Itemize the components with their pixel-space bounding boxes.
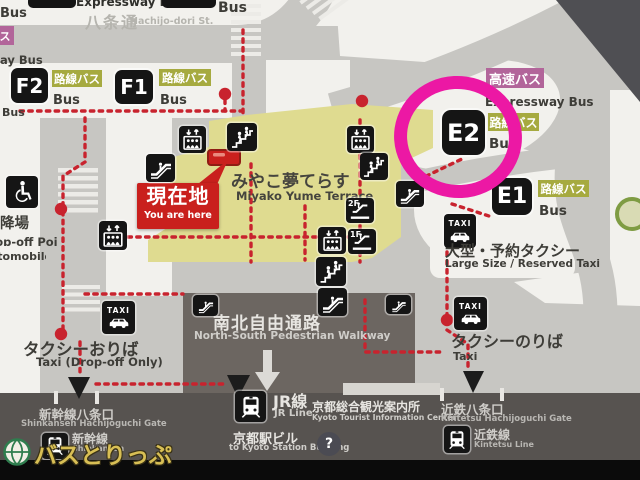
taxi-sign-text: TAXI (459, 303, 482, 311)
floor-label-2f: 2F (348, 199, 359, 208)
info-question-mark: ? (325, 436, 333, 452)
kintetsu-line-en: Kintetsu Line (474, 440, 534, 449)
stairs-icon (316, 257, 346, 286)
taxi-sign-text: TAXI (107, 307, 130, 315)
edge-express-tag: ス (0, 26, 14, 45)
walkway-name-en: North-South Pedestrian Walkway (194, 330, 390, 342)
walkway-sign (343, 383, 440, 395)
f2-local-bus-tag: 路線バス (52, 70, 102, 87)
you-are-here-ja: 現在地 (137, 183, 219, 210)
stairs-icon (227, 123, 257, 151)
taxi-stand-en: Taxi (453, 350, 477, 363)
bus-stop-e1-id: E1 (497, 184, 527, 209)
dropoff-point-ja: 降場 (0, 212, 29, 233)
you-are-here-marker (208, 150, 240, 165)
train-icon (444, 426, 470, 453)
jr-line-en: JR Line (274, 408, 313, 419)
e1-local-bus-tag: 路線バス (538, 180, 589, 197)
reserved-taxi-en: Large Size / Reserved Taxi (445, 258, 600, 270)
escalator-icon (146, 154, 175, 182)
bus-stop-f2-id: F2 (16, 74, 44, 98)
watermark-text: バスとりっぷ (34, 436, 172, 470)
wheelchair-icon (6, 176, 38, 208)
e2-express-bus-tag: 高速バス (486, 68, 544, 88)
globe-icon (2, 437, 32, 471)
bus-stop-f1: F1 (115, 70, 153, 104)
edge-expressway-bus-label: ay Bus (0, 53, 43, 67)
taxi-stand-ja: タクシーのりば (451, 328, 563, 352)
info-icon: ? (317, 432, 341, 456)
escalator-2f-icon: 2F (346, 198, 374, 223)
tourist-info-en: Kyoto Tourist Information Center (312, 413, 456, 422)
edge-bus-label: Bus (0, 6, 27, 21)
bus-stop-f1-id: F1 (120, 75, 148, 99)
you-are-here-box: 現在地 You are here (137, 183, 219, 229)
e1-bus-label: Bus (539, 203, 567, 219)
elevator-icon (347, 126, 374, 153)
elevator-icon (179, 126, 206, 153)
you-are-here-en: You are here (137, 210, 219, 221)
cutoff-stop-badge (28, 0, 76, 8)
cutoff-stop-badge (162, 0, 216, 8)
taxi-icon: TAXI (102, 301, 135, 334)
stairs-icon (360, 153, 388, 180)
train-icon (235, 391, 266, 422)
dropoff-point-en2: (automobile) (0, 250, 46, 260)
top-bus-label: Bus (218, 0, 247, 16)
bus-stop-f2: F2 (11, 68, 48, 103)
escalator-1f-icon: 1F (348, 229, 376, 254)
station-guide-map-photo: Expressway Bus Bus 八条通 Hachijo-dori St. … (0, 0, 640, 480)
escalator-icon (318, 288, 347, 316)
taxi-dropoff-en: Taxi (Drop-off Only) (36, 355, 163, 369)
kintetsu-gate-en: Kintetsu Hachijoguchi Gate (441, 414, 572, 424)
elevator-icon (99, 221, 127, 250)
walkway-down-arrow (255, 350, 280, 391)
f2-bus-label: Bus (53, 93, 80, 108)
escalator-icon (386, 295, 411, 314)
f1-bus-label: Bus (160, 93, 187, 108)
taxi-icon: TAXI (454, 297, 487, 330)
f1-local-bus-tag: 路線バス (159, 69, 211, 86)
shinkansen-gate-en: Shinkansen Hachijoguchi Gate (21, 419, 167, 429)
elevator-icon (318, 227, 346, 254)
taxi-sign-text: TAXI (449, 220, 472, 228)
floor-label-1f: 1F (350, 230, 361, 239)
edge-bus-label-low: Bus (2, 106, 25, 119)
street-name-en: Hachijo-dori St. (130, 16, 213, 27)
